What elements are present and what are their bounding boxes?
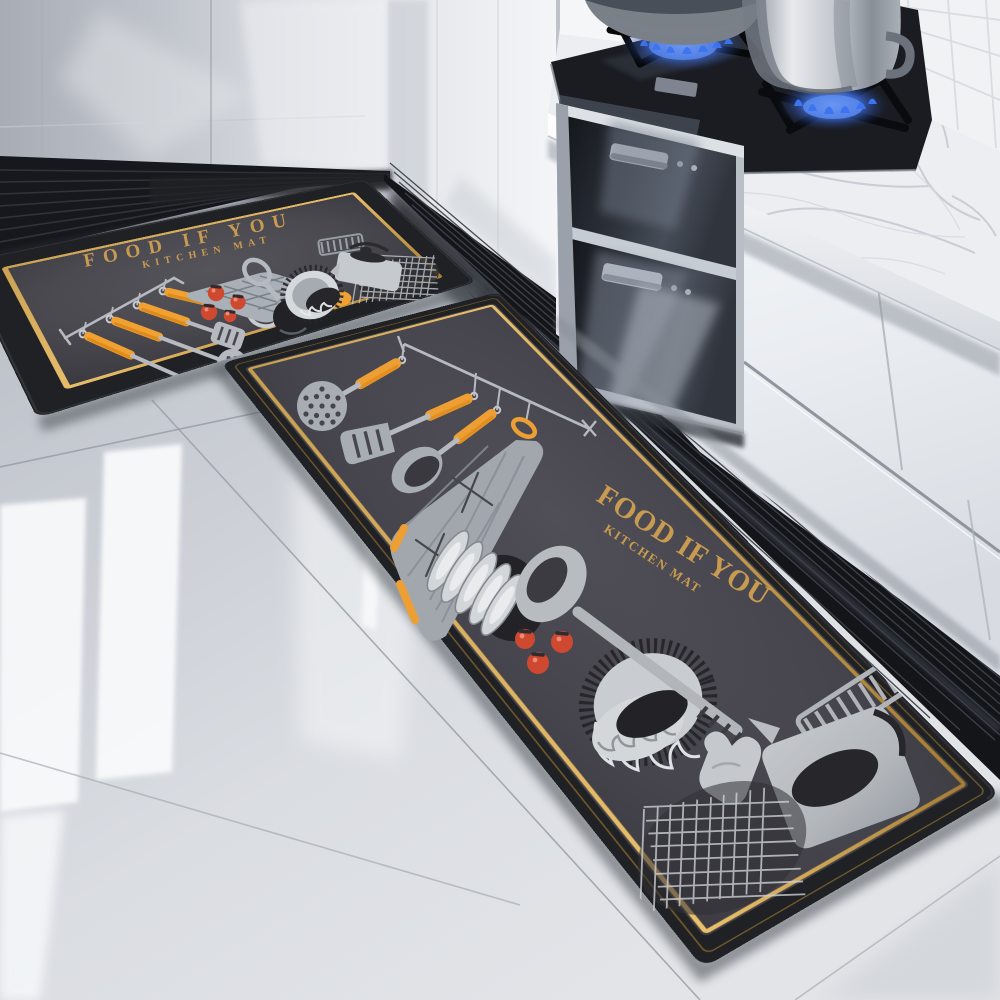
- svg-text:FOOD IF YOU: FOOD IF YOU: [591, 479, 776, 613]
